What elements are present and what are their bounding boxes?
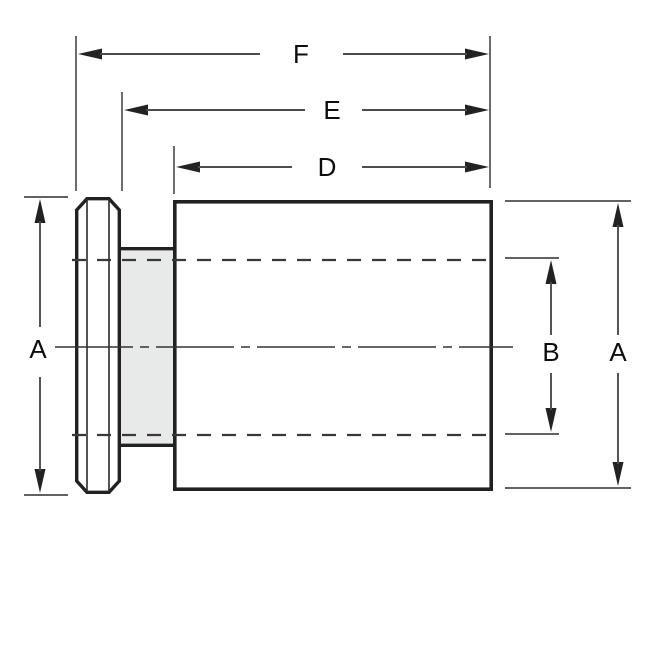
drawing-canvas: F E D A: [0, 0, 670, 670]
arrowhead-left: [78, 49, 102, 60]
dimension-f: F: [78, 39, 489, 69]
dimension-a-left: A: [24, 197, 68, 495]
flange-outline: [77, 199, 120, 493]
arrowhead-up: [613, 203, 624, 227]
arrowhead-right: [465, 49, 489, 60]
arrowhead-up: [35, 199, 46, 223]
dimension-b: B: [505, 258, 560, 434]
arrowhead-down: [35, 469, 46, 493]
dimension-e: E: [124, 95, 489, 125]
dim-label-f: F: [293, 39, 309, 69]
dim-label-d: D: [318, 152, 337, 182]
dim-label-e: E: [323, 95, 340, 125]
extension-lines: [76, 36, 490, 194]
arrowhead-up: [546, 260, 557, 284]
arrowhead-right: [465, 162, 489, 173]
part-flange: [77, 199, 120, 493]
dimension-a-right: A: [505, 201, 631, 488]
arrowhead-right: [465, 105, 489, 116]
body-rect: [175, 202, 491, 489]
dimension-d: D: [176, 152, 489, 182]
dim-label-a-right: A: [609, 337, 627, 367]
technical-drawing: F E D A: [0, 0, 670, 670]
dim-label-a-left: A: [29, 334, 47, 364]
dim-label-b: B: [542, 337, 559, 367]
arrowhead-down: [546, 408, 557, 432]
part-body: [175, 202, 491, 489]
arrowhead-left: [124, 105, 148, 116]
arrowhead-left: [176, 162, 200, 173]
arrowhead-down: [613, 462, 624, 486]
